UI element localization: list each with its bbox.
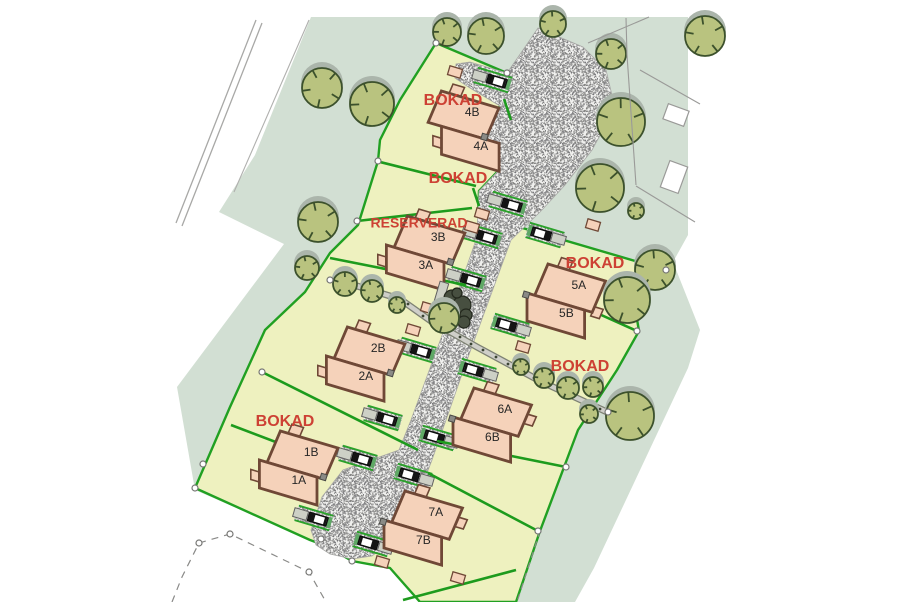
svg-text:BOKAD: BOKAD: [566, 255, 625, 272]
svg-text:BOKAD: BOKAD: [424, 92, 483, 109]
svg-text:RESERVERAD: RESERVERAD: [371, 215, 468, 231]
svg-text:5A: 5A: [571, 278, 586, 292]
svg-text:2B: 2B: [371, 341, 386, 355]
svg-text:3B: 3B: [431, 230, 446, 244]
svg-text:7B: 7B: [416, 533, 431, 547]
svg-text:7A: 7A: [428, 505, 443, 519]
svg-text:4A: 4A: [474, 139, 489, 153]
svg-text:6A: 6A: [497, 402, 512, 416]
svg-text:BOKAD: BOKAD: [256, 413, 315, 430]
svg-text:BOKAD: BOKAD: [551, 358, 610, 375]
svg-text:1A: 1A: [291, 473, 306, 487]
svg-text:1B: 1B: [304, 445, 319, 459]
svg-text:2A: 2A: [358, 369, 373, 383]
svg-text:5B: 5B: [559, 306, 574, 320]
svg-text:3A: 3A: [418, 258, 433, 272]
svg-text:6B: 6B: [485, 430, 500, 444]
svg-text:BOKAD: BOKAD: [429, 170, 488, 187]
